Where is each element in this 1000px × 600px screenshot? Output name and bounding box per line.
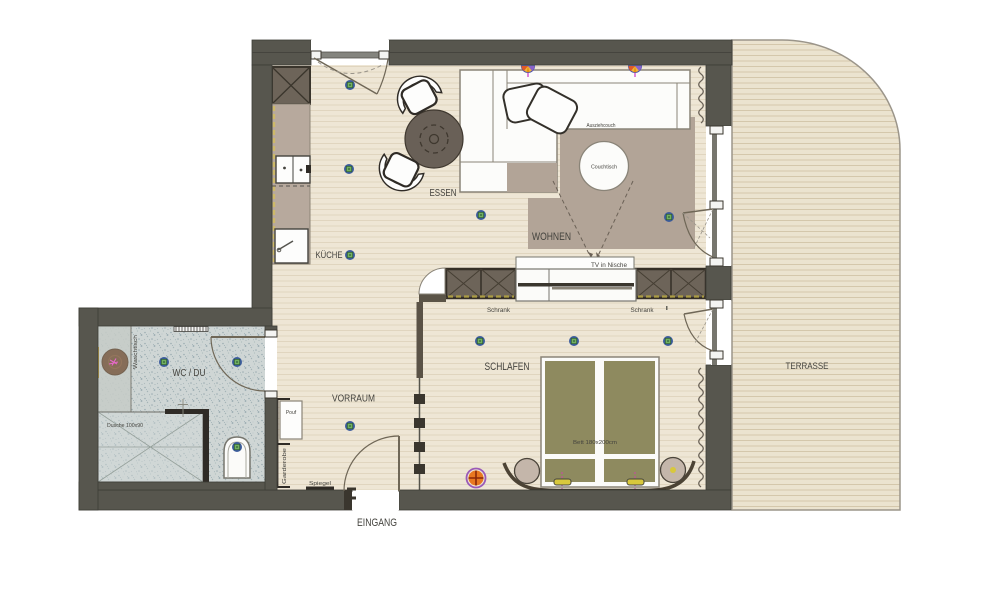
svg-text:Pouf: Pouf [286, 410, 297, 416]
svg-text:VORRAUM: VORRAUM [332, 393, 375, 405]
svg-text:Spiegel: Spiegel [309, 481, 331, 487]
svg-text:TV in Nische: TV in Nische [591, 263, 628, 269]
svg-text:Garderobe: Garderobe [282, 448, 288, 484]
svg-text:WC / DU: WC / DU [173, 368, 206, 379]
svg-text:ESSEN: ESSEN [430, 188, 457, 199]
svg-text:Bett 180x200cm: Bett 180x200cm [573, 440, 617, 446]
svg-text:Schrank: Schrank [487, 307, 511, 314]
svg-text:TERRASSE: TERRASSE [786, 361, 829, 372]
svg-text:Ausziehcouch: Ausziehcouch [587, 123, 616, 129]
svg-text:Waschtisch: Waschtisch [133, 335, 139, 369]
svg-text:Dusche 100x90: Dusche 100x90 [107, 423, 143, 429]
svg-text:SCHLAFEN: SCHLAFEN [485, 361, 530, 373]
svg-text:WOHNEN: WOHNEN [532, 231, 571, 243]
svg-text:Couchtisch: Couchtisch [591, 165, 617, 171]
svg-text:Schrank: Schrank [631, 307, 655, 314]
svg-text:EINGANG: EINGANG [357, 517, 397, 529]
svg-text:KÜCHE: KÜCHE [316, 250, 343, 260]
